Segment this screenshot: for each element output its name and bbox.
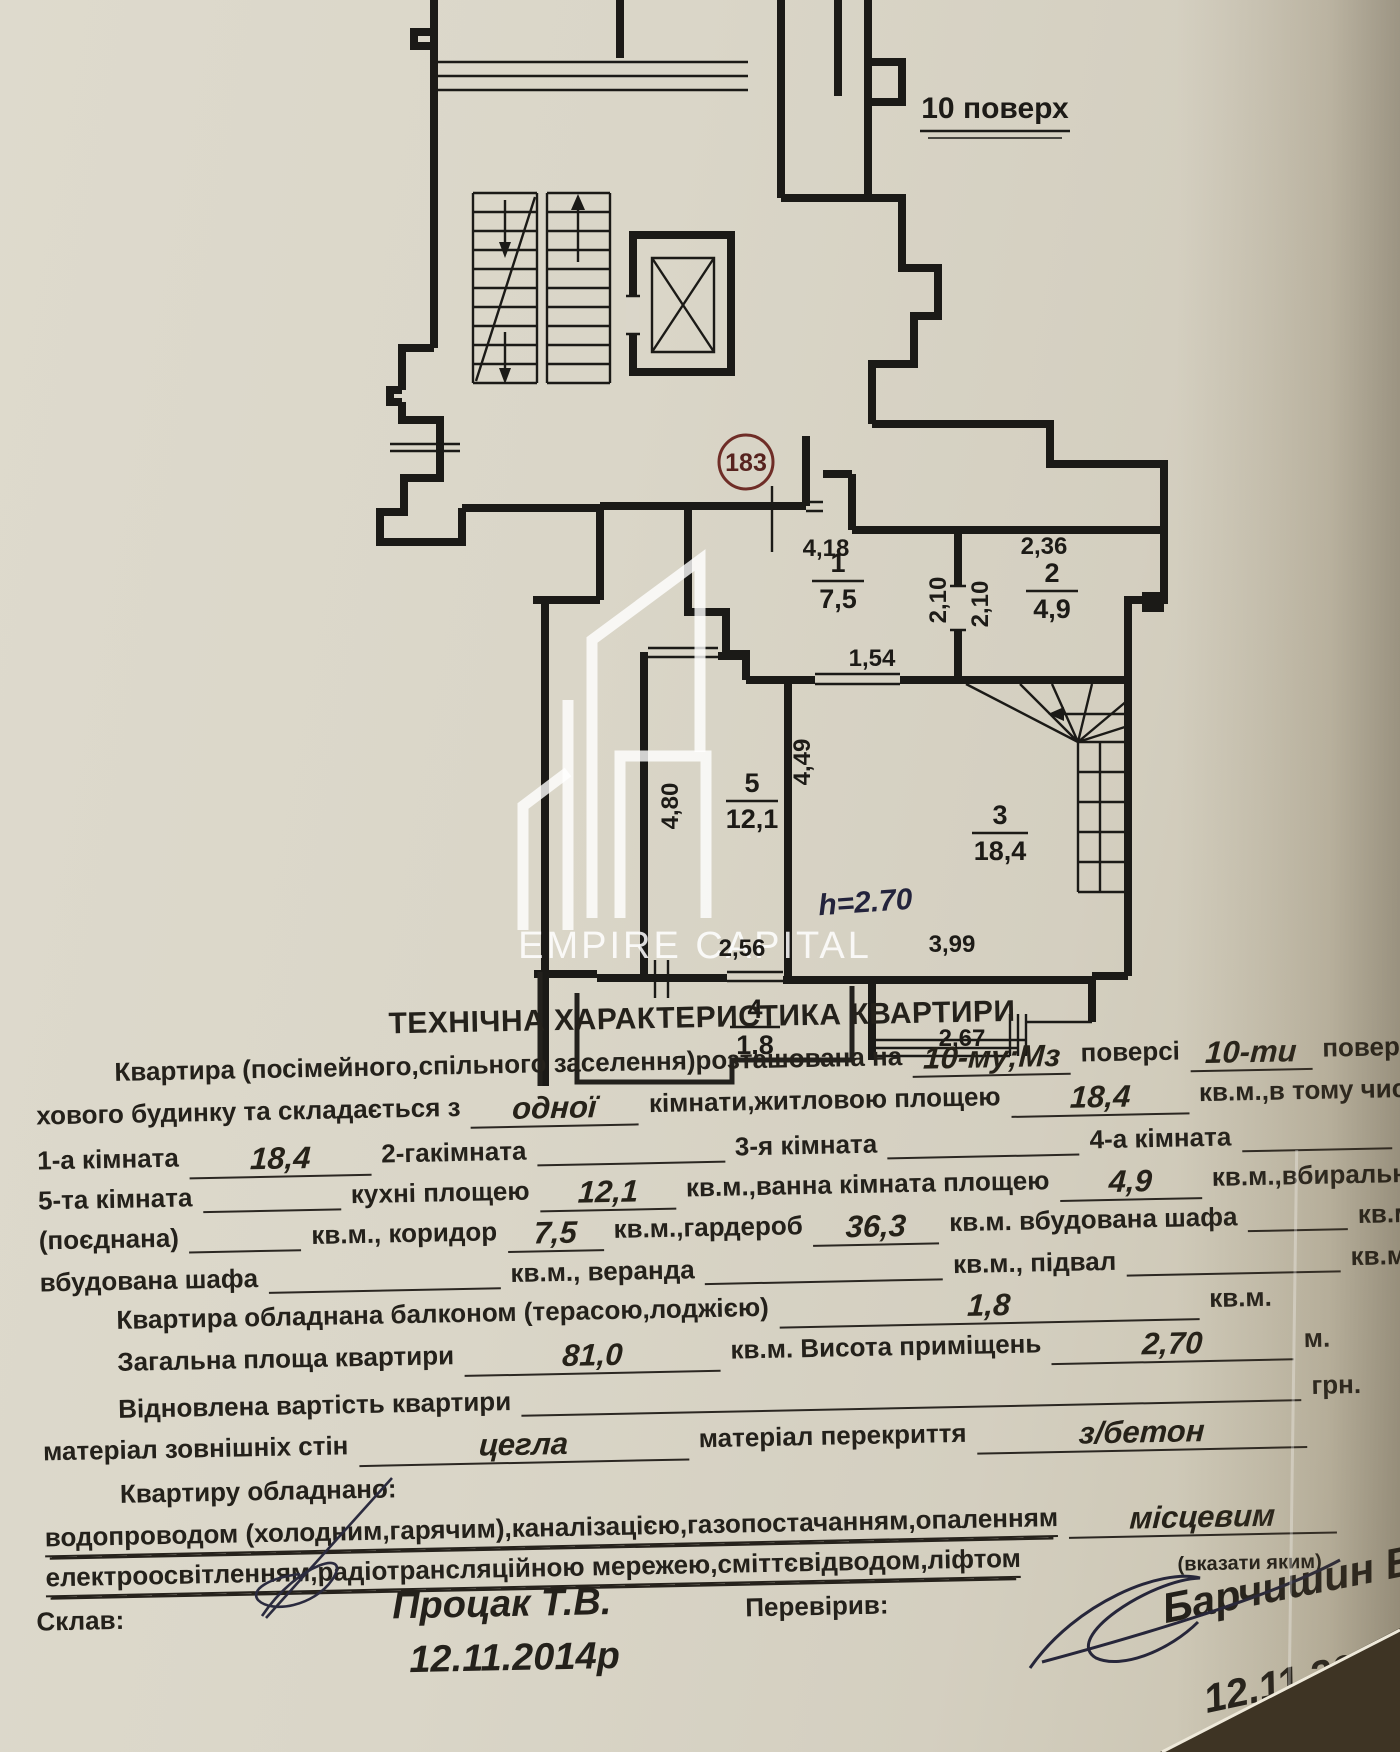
scanned-technical-passport-page: EMPIRE CAPITAL 10 поверх 183 1 7,5 2 4,9… [0,0,1400,1752]
made-by-signature [256,1478,392,1618]
signatures-overlay [0,0,1400,1752]
checked-by-signature [1030,1560,1340,1668]
